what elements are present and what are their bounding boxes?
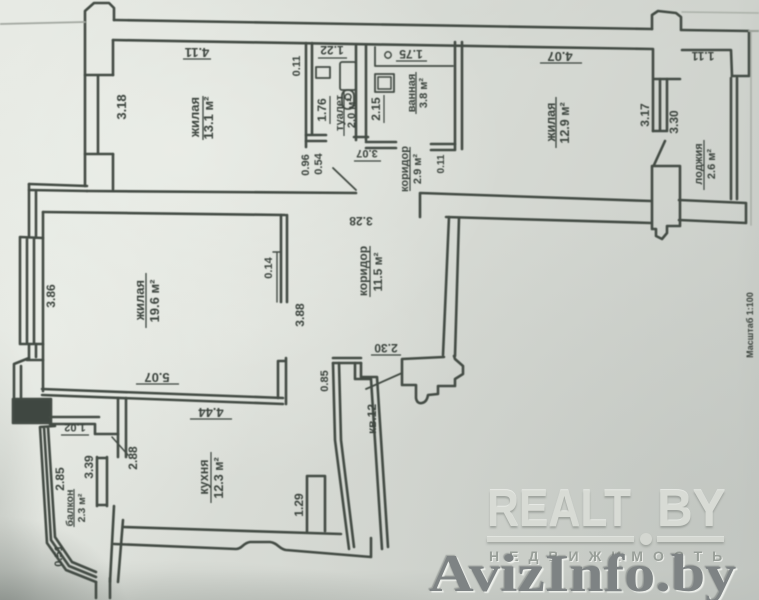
svg-text:1.02: 1.02 (64, 421, 85, 433)
svg-text:2.3 м²: 2.3 м² (76, 493, 88, 522)
svg-text:4.11: 4.11 (185, 45, 210, 60)
svg-text:3.86: 3.86 (44, 284, 58, 308)
svg-text:11.5 м²: 11.5 м² (371, 253, 385, 292)
svg-text:3.30: 3.30 (667, 110, 681, 134)
svg-text:4.44: 4.44 (198, 405, 224, 420)
svg-text:2.9 м²: 2.9 м² (412, 154, 424, 184)
svg-text:коридор: коридор (399, 146, 411, 192)
svg-text:2.15: 2.15 (369, 97, 383, 121)
svg-text:19.6 м²: 19.6 м² (147, 279, 162, 323)
svg-text:жилая: жилая (132, 280, 147, 321)
svg-text:Масштаб 1:100: Масштаб 1:100 (745, 292, 755, 358)
svg-text:2.6 м²: 2.6 м² (706, 149, 718, 179)
svg-text:кухня: кухня (197, 459, 211, 494)
svg-text:3.17: 3.17 (638, 103, 652, 127)
svg-text:жилая: жилая (187, 97, 202, 138)
svg-text:0.11: 0.11 (291, 56, 303, 77)
svg-text:5.07: 5.07 (144, 370, 169, 385)
svg-text:2.30: 2.30 (374, 341, 398, 355)
svg-text:0.54: 0.54 (313, 152, 325, 174)
svg-text:4.07: 4.07 (547, 49, 572, 64)
svg-text:1.76: 1.76 (315, 98, 329, 122)
svg-text:3.88: 3.88 (293, 303, 307, 327)
svg-text:0.51: 0.51 (53, 545, 65, 566)
svg-text:12.3 м²: 12.3 м² (212, 457, 226, 498)
svg-text:2.85: 2.85 (53, 467, 67, 491)
svg-text:3.18: 3.18 (114, 94, 129, 119)
svg-text:3.39: 3.39 (82, 455, 96, 479)
svg-text:3.28: 3.28 (349, 214, 373, 228)
svg-text:лоджия: лоджия (693, 143, 705, 184)
svg-text:0.85: 0.85 (319, 370, 331, 391)
svg-text:кв.12: кв.12 (365, 404, 379, 434)
svg-text:1.11: 1.11 (691, 49, 714, 63)
svg-text:коридор: коридор (356, 246, 370, 296)
svg-text:2.88: 2.88 (126, 446, 140, 470)
svg-text:12.9 м²: 12.9 м² (558, 102, 572, 143)
svg-text:1.22: 1.22 (320, 43, 344, 57)
svg-text:1.75: 1.75 (399, 47, 423, 61)
svg-text:3.8 м²: 3.8 м² (418, 78, 430, 108)
svg-text:3.07: 3.07 (356, 147, 377, 159)
svg-text:2.0 м²: 2.0 м² (346, 98, 358, 128)
svg-text:0.11: 0.11 (436, 154, 447, 173)
svg-text:0.96: 0.96 (300, 154, 312, 175)
svg-text:0.14: 0.14 (263, 256, 275, 278)
svg-text:1.29: 1.29 (292, 493, 306, 517)
